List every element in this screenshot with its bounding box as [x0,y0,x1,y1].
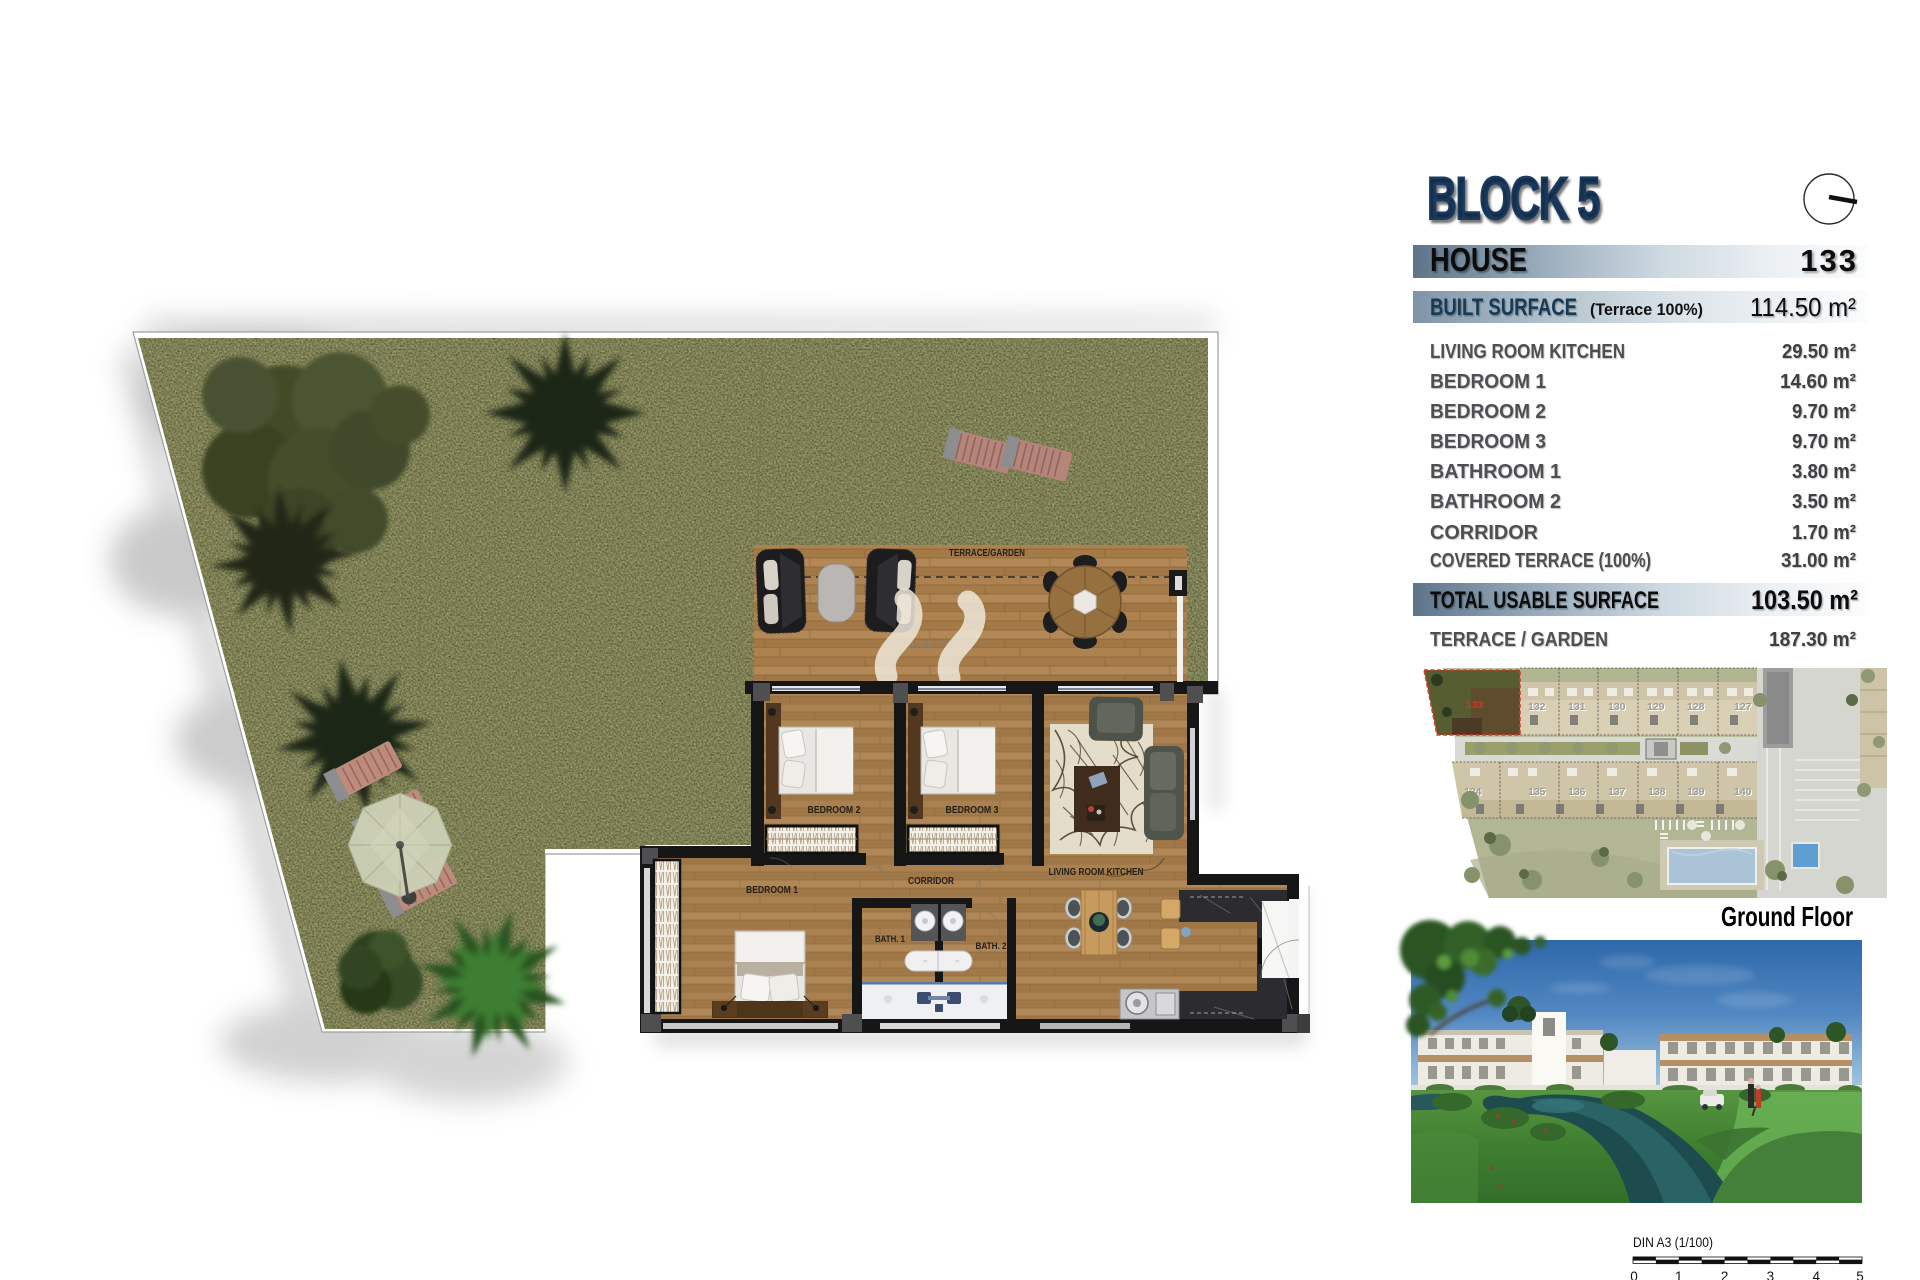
svg-text:1.70 m²: 1.70 m² [1792,522,1856,544]
svg-text:LIVING ROOM KITCHEN: LIVING ROOM KITCHEN [1049,867,1144,878]
svg-text:CORRIDOR: CORRIDOR [908,876,955,887]
svg-text:5: 5 [1856,1269,1864,1280]
svg-text:139: 139 [1687,786,1705,798]
svg-text:14.60 m²: 14.60 m² [1780,371,1856,393]
svg-text:132: 132 [1528,701,1546,713]
svg-text:(Terrace 100%): (Terrace 100%) [1590,301,1703,319]
svg-text:BEDROOM 1: BEDROOM 1 [746,885,798,896]
svg-text:3.80 m²: 3.80 m² [1792,461,1856,483]
svg-text:4: 4 [1812,1269,1820,1280]
svg-text:COVERED TERRACE (100%): COVERED TERRACE (100%) [1430,550,1651,572]
svg-text:9.70 m²: 9.70 m² [1792,431,1856,453]
svg-text:LIVING ROOM KITCHEN: LIVING ROOM KITCHEN [1430,341,1625,363]
svg-text:HOUSE: HOUSE [1430,241,1527,278]
svg-text:Ground Floor: Ground Floor [1721,901,1853,932]
svg-text:29.50 m²: 29.50 m² [1782,341,1856,363]
svg-text:138: 138 [1648,786,1666,798]
svg-text:DIN A3 (1/100): DIN A3 (1/100) [1633,1235,1713,1250]
svg-text:BEDROOM 3: BEDROOM 3 [1430,431,1546,453]
svg-text:3.50 m²: 3.50 m² [1792,491,1856,513]
svg-text:133: 133 [1800,243,1858,278]
svg-text:137: 137 [1608,786,1626,798]
svg-text:2: 2 [1721,1269,1729,1280]
svg-text:BATH. 2: BATH. 2 [976,941,1007,952]
svg-text:136: 136 [1568,786,1586,798]
svg-text:128: 128 [1687,701,1705,713]
svg-text:9.70 m²: 9.70 m² [1792,401,1856,423]
svg-text:BEDROOM 2: BEDROOM 2 [1430,401,1546,423]
svg-text:129: 129 [1647,701,1665,713]
svg-text:TOTAL USABLE SURFACE: TOTAL USABLE SURFACE [1430,587,1659,614]
svg-text:131: 131 [1568,701,1586,713]
svg-text:31.00 m²: 31.00 m² [1781,550,1856,572]
svg-text:135: 135 [1528,786,1546,798]
svg-text:BEDROOM 1: BEDROOM 1 [1430,371,1546,393]
svg-text:103.50 m²: 103.50 m² [1751,585,1858,615]
svg-text:133: 133 [1466,699,1484,711]
svg-text:127: 127 [1734,701,1752,713]
svg-text:3: 3 [1767,1269,1775,1280]
svg-text:BEDROOM 2: BEDROOM 2 [808,805,861,816]
svg-text:BATHROOM 2: BATHROOM 2 [1430,491,1561,513]
svg-text:CORRIDOR: CORRIDOR [1430,522,1539,544]
svg-text:BATHROOM 1: BATHROOM 1 [1430,461,1561,483]
svg-text:114.50 m²: 114.50 m² [1750,292,1856,322]
svg-text:BUILT SURFACE: BUILT SURFACE [1430,294,1577,321]
svg-text:BATH. 1: BATH. 1 [875,934,906,945]
svg-text:BEDROOM 3: BEDROOM 3 [946,805,999,816]
svg-text:TERRACE / GARDEN: TERRACE / GARDEN [1430,629,1608,651]
svg-text:TERRACE/GARDEN: TERRACE/GARDEN [949,548,1025,559]
svg-text:130: 130 [1608,701,1626,713]
svg-text:1: 1 [1675,1269,1683,1280]
svg-text:BLOCK 5: BLOCK 5 [1427,165,1599,232]
svg-text:140: 140 [1734,786,1752,798]
svg-text:0: 0 [1630,1269,1638,1280]
svg-text:187.30 m²: 187.30 m² [1769,629,1856,651]
